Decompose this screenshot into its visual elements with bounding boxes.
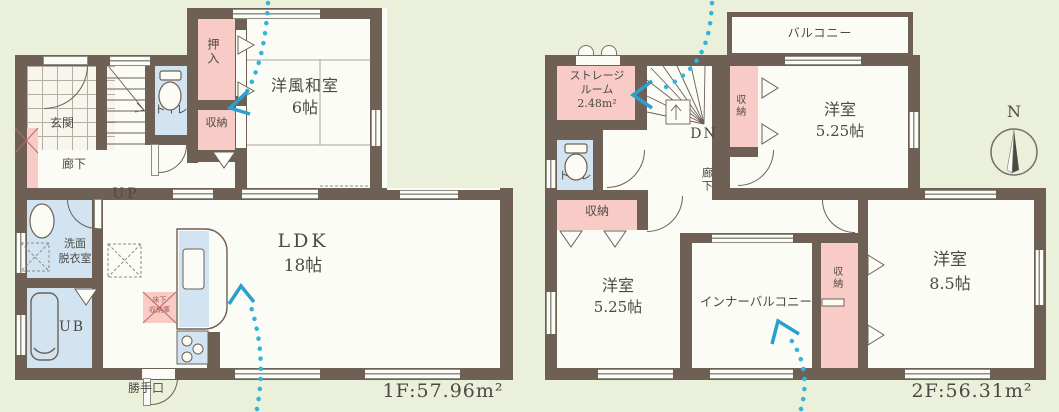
- room-label-bedroom-bl: 洋室: [582, 276, 654, 296]
- floor-base: [382, 188, 513, 380]
- back-door-label: 勝手口: [113, 381, 179, 397]
- toilet-room: [155, 66, 187, 135]
- room-label-bedroom-tr: 洋室: [795, 100, 885, 120]
- window: [925, 190, 996, 199]
- wall: [187, 150, 247, 162]
- toilet-room: [557, 140, 593, 192]
- room-label-shuno: 収納: [198, 115, 235, 132]
- floor2-area-label: 2F:56.31m²: [898, 379, 1046, 405]
- room-label-toilet: トイレ: [150, 103, 192, 118]
- window: [235, 369, 320, 379]
- storage-room-label-1: ストレージ: [559, 69, 635, 83]
- room-size-bedroom-bl: 5.25帖: [582, 298, 654, 317]
- window: [909, 112, 919, 148]
- closet-tr-label: 収納: [731, 84, 747, 128]
- room-label-washroom-2: 脱衣室: [43, 252, 107, 267]
- window: [598, 369, 673, 379]
- window: [233, 9, 320, 19]
- room-label-washroom-1: 洗面: [43, 237, 107, 252]
- room-label-ldk: LDK: [258, 230, 348, 254]
- storage-room-area: 2.48m²: [559, 97, 635, 111]
- room-size-washitsu: 6帖: [250, 98, 360, 118]
- storage-door-leaf: [601, 45, 617, 56]
- window: [365, 369, 460, 379]
- wall: [195, 100, 235, 110]
- floor1-area-label: 1F:57.96m²: [373, 379, 513, 405]
- storage-room-label-2: ルーム: [559, 83, 635, 97]
- room-label-genkan: 玄関: [38, 116, 86, 132]
- window: [371, 110, 381, 146]
- wall: [187, 8, 198, 163]
- storage-door-leaf: [578, 45, 594, 56]
- room-label-hallway: 廊下: [50, 157, 98, 173]
- window: [1035, 250, 1044, 305]
- stairs-down-label: DN: [686, 126, 722, 142]
- fusuma-opening: [236, 106, 246, 148]
- floorplan-image: 玄関 廊下 UP トイレ 押入 収納 洋風和室 6帖 洗面 脱衣室 UB LDK…: [0, 0, 1059, 412]
- compass-n-label: N: [1001, 101, 1027, 124]
- underfloor-storage-label-2: 収納庫: [143, 305, 176, 316]
- room-label-washitsu: 洋風和室: [250, 76, 360, 96]
- wall: [712, 188, 920, 200]
- sliding-door: [173, 189, 213, 199]
- window: [16, 315, 26, 355]
- closet-band-label: 収納: [557, 203, 637, 221]
- room-size-bedroom-br: 8.5帖: [912, 274, 988, 294]
- balcony-label: バルコニー: [778, 25, 862, 42]
- wall: [557, 120, 647, 130]
- room-label-toilet: トイレ: [553, 169, 597, 184]
- stairs-up-label: UP: [104, 186, 148, 202]
- wall: [500, 188, 513, 380]
- room-label-hallway: 廊下: [697, 160, 715, 200]
- window: [546, 292, 556, 334]
- wall: [635, 62, 647, 130]
- storage-door-opening: [576, 56, 620, 65]
- room-label-ub: UB: [48, 318, 96, 336]
- closet-column-label: 収納: [828, 255, 844, 301]
- wall: [545, 190, 648, 200]
- wall: [96, 58, 107, 150]
- wall: [207, 332, 220, 368]
- inner-balcony-label: インナーバルコニー: [690, 294, 822, 311]
- room-size-ldk: 18帖: [258, 256, 348, 278]
- compass: [991, 129, 1037, 175]
- fusuma-opening: [236, 30, 246, 96]
- window: [905, 369, 990, 379]
- toilet-door: [151, 144, 159, 176]
- wall: [858, 200, 868, 370]
- window: [400, 190, 458, 199]
- window: [16, 233, 26, 273]
- room-label-bedroom-br: 洋室: [912, 250, 988, 272]
- room-size-bedroom-tr: 5.25帖: [795, 122, 885, 142]
- wall: [145, 58, 155, 135]
- front-door: [43, 56, 88, 65]
- wall: [15, 278, 103, 288]
- window: [785, 56, 861, 65]
- sliding-door: [242, 189, 318, 199]
- window: [712, 234, 793, 243]
- window: [110, 56, 150, 66]
- wall: [370, 19, 382, 190]
- window: [710, 369, 793, 379]
- room-label-oshiire: 押入: [202, 26, 222, 78]
